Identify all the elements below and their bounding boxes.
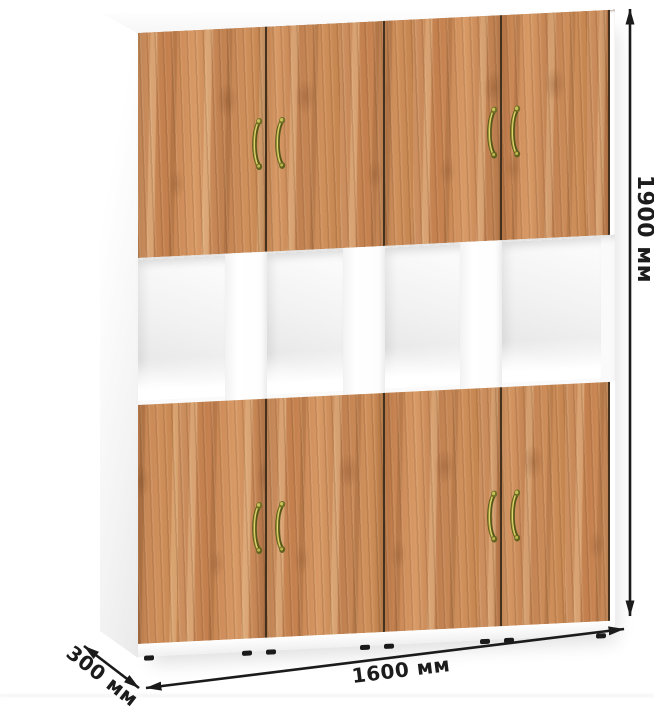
product-image: 1900 мм 1600 мм 300 мм [0, 0, 654, 700]
dimension-overlay [0, 0, 654, 700]
height-dimension-label: 1900 мм [632, 162, 654, 296]
